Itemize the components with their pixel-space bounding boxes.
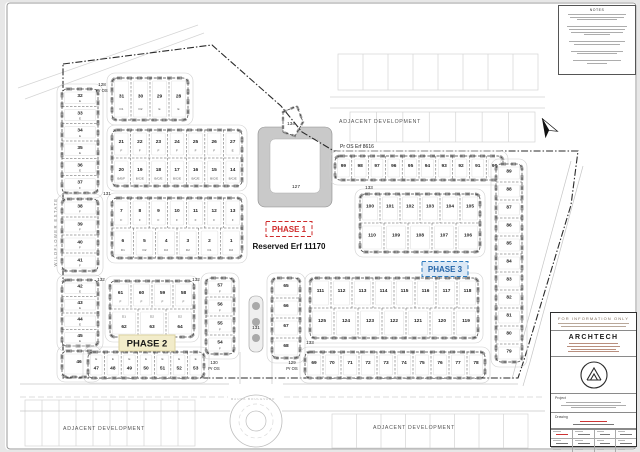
plot-number: 69 <box>311 360 317 366</box>
plot-number: 101 <box>386 203 394 209</box>
plot-number: 99 <box>341 163 347 169</box>
plot-type: F <box>219 327 221 331</box>
plot-number: 34 <box>77 128 83 134</box>
plot-type: D1 <box>120 107 124 111</box>
plot-type: E <box>79 306 81 310</box>
plot-number: 30 <box>138 93 144 99</box>
plot-type: E <box>232 148 234 152</box>
map-label: Pr OS Erf 8616 <box>340 144 374 150</box>
plot-number: 120 <box>438 318 446 324</box>
plot-number: 50 <box>143 366 149 372</box>
map-label: 128 <box>98 82 106 87</box>
plot-type: B/C/E <box>173 176 181 180</box>
plot-type: D1 <box>121 248 125 252</box>
plot-type: E <box>79 290 81 294</box>
plot-type: D2 <box>150 314 154 318</box>
notes-panel: NOTES <box>558 5 636 75</box>
plot-number: 29 <box>157 93 163 99</box>
plot-number: 24 <box>174 139 180 145</box>
plot-number: 53 <box>193 366 199 372</box>
plot-number: 67 <box>283 323 289 329</box>
plot-type: E <box>162 357 164 361</box>
plot-number: 70 <box>329 360 335 366</box>
plot-type: F <box>219 308 221 312</box>
plot-type: F <box>79 210 81 214</box>
plot-number: 3 <box>186 238 189 244</box>
project-section: Project <box>551 394 636 413</box>
plot-number: 106 <box>464 232 472 238</box>
plot-number: 48 <box>110 366 116 372</box>
notes-title: NOTES <box>564 8 630 12</box>
plot-number: 59 <box>160 290 166 296</box>
plot-type: F <box>183 299 185 303</box>
plot-number: 80 <box>506 330 512 336</box>
plot-type: F <box>139 218 141 222</box>
plot-number: 40 <box>77 239 83 245</box>
plot-type: D2 <box>164 248 168 252</box>
plot-type: F <box>139 148 141 152</box>
plot-number: 94 <box>425 163 431 169</box>
map-label: 134 <box>287 121 295 126</box>
plot-number: 100 <box>366 203 374 209</box>
plot-type: D2 <box>229 248 233 252</box>
plot-number: 46 <box>76 359 82 365</box>
drawing-section: Drawing <box>551 413 636 429</box>
plot-number: 122 <box>390 318 398 324</box>
plot-type: D2 <box>139 107 143 111</box>
entrance-median <box>249 296 263 352</box>
plot-type: F <box>120 299 122 303</box>
plot-type: B/C/E <box>229 176 237 180</box>
plot-block: 100101102103104105110109108107106 <box>355 189 485 257</box>
map-label: 127 <box>292 184 300 190</box>
plot-type: E <box>177 107 179 111</box>
plot-number: 62 <box>121 324 127 330</box>
plot-number: 79 <box>506 348 512 354</box>
plot-number: 15 <box>211 167 217 173</box>
map-label: 129 <box>288 360 296 365</box>
plot-number: 82 <box>506 294 512 300</box>
plot-number: 41 <box>77 257 83 263</box>
plot-number: 7 <box>120 208 123 214</box>
plot-number: 107 <box>440 232 448 238</box>
phase-label-phase-3: PHASE 3 <box>422 262 468 277</box>
plot-number: 96 <box>391 163 397 169</box>
plot-block: 99989796959493929190 <box>330 151 508 185</box>
plot-type: F <box>120 148 122 152</box>
map-label: ADJACENT DEVELOPMENT <box>63 426 145 432</box>
info-banner-section: FOR INFORMATION ONLY <box>551 313 636 331</box>
map-label: 133 <box>365 185 373 190</box>
plot-type: F <box>213 218 215 222</box>
plot-number: 38 <box>77 203 83 209</box>
plot-number: 119 <box>462 318 470 324</box>
plot-number: 103 <box>426 203 434 209</box>
tree-icon <box>252 334 260 342</box>
plot-number: 54 <box>217 340 223 346</box>
plot-number: 26 <box>211 139 217 145</box>
revision-table <box>551 429 636 452</box>
plot-number: 10 <box>174 208 180 214</box>
plot-number: 117 <box>443 288 451 294</box>
plot-number: 89 <box>506 168 512 174</box>
plot-type: F <box>213 148 215 152</box>
map-label: ADJACENT DEVELOPMENT <box>339 119 421 125</box>
plot-number: 2 <box>208 238 211 244</box>
plot-number: 72 <box>365 360 371 366</box>
plot-number: 81 <box>506 312 512 318</box>
plot-number: 60 <box>139 290 145 296</box>
plot-number: 111 <box>317 288 325 294</box>
plot-number: 22 <box>137 139 143 145</box>
plot-number: 55 <box>217 321 223 327</box>
plot-type: E <box>178 357 180 361</box>
plot-number: 1 <box>230 238 233 244</box>
plot-block: 7F8F9F10F11F12F13F6D15D24D23D22D11D2 <box>107 193 247 263</box>
plot-type: F <box>162 299 164 303</box>
plot-number: 75 <box>419 360 425 366</box>
plot-type: F <box>195 218 197 222</box>
firm-name: ARCHTECH <box>555 334 632 341</box>
plot-number: 6 <box>121 238 124 244</box>
plot-number: 78 <box>473 360 479 366</box>
plot-number: 105 <box>466 203 474 209</box>
drawing-label: Drawing <box>555 415 632 419</box>
plot-number: 11 <box>193 208 198 214</box>
plot-number: 13 <box>230 208 236 214</box>
plot-type: F <box>219 289 221 293</box>
plot-number: 16 <box>193 167 199 173</box>
map-label: 130 <box>210 360 218 365</box>
erf-127-open-space <box>258 127 332 207</box>
plot-type: E <box>158 107 160 111</box>
plot-number: 28 <box>176 93 182 99</box>
plot-number: 84 <box>506 258 512 264</box>
plot-number: 14 <box>230 167 236 173</box>
plot-block: 8988878685848382818079 <box>491 159 527 367</box>
plot-number: 35 <box>77 145 83 151</box>
plot-number: 124 <box>342 318 350 324</box>
plot-number: 123 <box>366 318 374 324</box>
plot-number: 87 <box>506 204 512 210</box>
plot-type: D2 <box>143 248 147 252</box>
plot-number: 20 <box>119 167 125 173</box>
plot-block: 42E43E44E45E <box>57 275 103 351</box>
map-label: Pr OS <box>286 366 298 371</box>
plot-type: F <box>141 299 143 303</box>
plot-number: 19 <box>137 167 143 173</box>
plot-number: 114 <box>380 288 388 294</box>
plot-number: 52 <box>176 366 182 372</box>
phase-label-phase-2: PHASE 2 <box>119 335 175 351</box>
plot-number: 77 <box>455 360 461 366</box>
plot-type: B/C/E <box>136 176 144 180</box>
archtech-logo-icon <box>579 360 609 390</box>
plot-block: 21F22F23F24F25F26F27E20B/E/F19B/C/E18B/C… <box>107 125 247 191</box>
plot-type: E <box>95 357 97 361</box>
plot-type: F <box>79 264 81 268</box>
plot-type: E <box>79 117 81 121</box>
plot-number: 115 <box>401 288 409 294</box>
plot-number: 98 <box>358 163 364 169</box>
plot-type: F <box>195 148 197 152</box>
plot-type: D1 <box>208 248 212 252</box>
plot-type: F <box>79 228 81 232</box>
plot-number: 5 <box>143 238 146 244</box>
plot-block: 32E33E34E35E36E37F <box>57 84 103 198</box>
plot-number: 23 <box>156 139 162 145</box>
plot-type: E <box>79 323 81 327</box>
plot-number: 66 <box>283 303 289 309</box>
plot-number: 86 <box>506 222 512 228</box>
plot-block: 38F39F40F41F <box>57 194 103 276</box>
plot-number: 112 <box>338 288 346 294</box>
map-label: 131 <box>252 325 260 330</box>
plot-type: D1 <box>122 314 126 318</box>
map-label: WILDFLOWER ESTATE <box>53 197 58 266</box>
plot-type: F <box>79 186 81 190</box>
plot-number: 31 <box>119 93 125 99</box>
map-label: ADJACENT DEVELOPMENT <box>373 425 455 431</box>
plot-number: 8 <box>139 208 142 214</box>
plot-type: F <box>79 246 81 250</box>
plot-number: 121 <box>414 318 422 324</box>
plot-number: 51 <box>160 366 166 372</box>
phase-label-phase-1: PHASE 1 <box>266 222 312 237</box>
plot-type: E <box>79 339 81 343</box>
plot-number: 56 <box>217 302 223 308</box>
plot-number: 21 <box>119 139 125 145</box>
for-information-only-banner: FOR INFORMATION ONLY <box>555 316 632 321</box>
plot-number: 65 <box>283 283 289 289</box>
plot-block: 61F60F59F58F62D163D264D2 <box>105 276 199 342</box>
plot-number: 58 <box>181 290 187 296</box>
site-plan-svg: 31D130D229E28E32E33E34E35E36E37F38F39F40… <box>0 0 640 452</box>
plot-number: 49 <box>127 366 133 372</box>
plot-type: F <box>176 148 178 152</box>
plot-type: F <box>120 218 122 222</box>
plot-block: 1111121131141151161171181251241231221211… <box>305 273 483 343</box>
svg-text:PHASE 2: PHASE 2 <box>127 338 168 349</box>
plot-type: B/C/E <box>210 176 218 180</box>
plot-number: 71 <box>347 360 353 366</box>
map-label: 132 <box>97 277 105 282</box>
plot-number: 25 <box>193 139 199 145</box>
plot-number: 113 <box>359 288 367 294</box>
plot-block: 31D130D229E28E <box>107 73 193 125</box>
plot-number: 116 <box>422 288 430 294</box>
plot-number: 97 <box>374 163 380 169</box>
map-label: 133 <box>306 340 314 345</box>
plot-type: B/C/E <box>192 176 200 180</box>
plot-type: D2 <box>186 248 190 252</box>
plot-type: F <box>219 346 221 350</box>
plot-type: E <box>195 357 197 361</box>
plot-number: 91 <box>475 163 481 169</box>
plot-number: 4 <box>165 238 168 244</box>
plot-number: 92 <box>458 163 464 169</box>
roundabout-island <box>246 411 266 431</box>
notes-text-lines <box>564 14 630 64</box>
plot-number: 18 <box>156 167 162 173</box>
plot-number: 57 <box>217 283 223 289</box>
plot-type: E <box>128 357 130 361</box>
title-block: FOR INFORMATION ONLY ARCHTECH Project Dr… <box>550 312 637 447</box>
plot-block: 65666768 <box>267 273 305 363</box>
plot-type: F <box>157 148 159 152</box>
plot-number: 109 <box>392 232 400 238</box>
plot-number: 102 <box>406 203 414 209</box>
logo-section <box>551 357 636 394</box>
plot-type: E <box>79 169 81 173</box>
svg-text:PHASE 1: PHASE 1 <box>272 225 307 234</box>
plot-type: E <box>112 357 114 361</box>
plot-number: 110 <box>368 232 376 238</box>
plot-block: 57F56F55F54F <box>201 273 239 359</box>
plot-number: 68 <box>283 343 289 349</box>
plot-type: E <box>79 134 81 138</box>
plot-number: 47 <box>94 366 100 372</box>
plot-number: 27 <box>230 139 236 145</box>
plot-type: F <box>232 218 234 222</box>
plot-number: 36 <box>77 162 83 168</box>
map-label: Pr OS <box>96 88 108 93</box>
drawing-sheet: 31D130D229E28E32E33E34E35E36E37F38F39F40… <box>0 0 640 452</box>
plot-number: 125 <box>318 318 326 324</box>
plot-type: F <box>176 218 178 222</box>
plot-type: B/C/E <box>154 176 162 180</box>
plot-number: 39 <box>77 221 83 227</box>
plot-block: 69707172737475767778 <box>300 347 490 383</box>
map-label: 132 <box>192 277 200 282</box>
plot-number: 73 <box>383 360 389 366</box>
plot-number: 108 <box>416 232 424 238</box>
map-label: 131 <box>103 191 111 196</box>
plot-number: 12 <box>211 208 217 214</box>
plot-number: 95 <box>408 163 414 169</box>
plot-number: 9 <box>157 208 160 214</box>
plot-type: E <box>79 151 81 155</box>
plot-type: E <box>79 99 81 103</box>
plot-number: 32 <box>77 93 83 99</box>
firm-section: ARCHTECH <box>551 331 636 357</box>
plot-number: 17 <box>174 167 180 173</box>
plot-type: B/E/F <box>117 176 125 180</box>
plot-number: 64 <box>177 324 183 330</box>
tree-icon <box>252 302 260 310</box>
plot-block: 47E48E49E50E51E52E53E <box>83 347 209 383</box>
plot-number: 76 <box>437 360 443 366</box>
plot-type: D2 <box>178 314 182 318</box>
plot-number: 74 <box>401 360 407 366</box>
plot-number: 85 <box>506 240 512 246</box>
plot-number: 83 <box>506 276 512 282</box>
map-label: Reserved Erf 11170 <box>253 242 326 251</box>
plot-number: 63 <box>149 324 155 330</box>
plot-number: 93 <box>442 163 448 169</box>
map-label: Pr OS <box>208 366 220 371</box>
plot-number: 37 <box>77 180 83 186</box>
project-label: Project <box>555 396 632 400</box>
plot-number: 33 <box>77 110 83 116</box>
plot-number: 118 <box>464 288 472 294</box>
plot-number: 61 <box>118 290 124 296</box>
plot-number: 104 <box>446 203 454 209</box>
plot-type: E <box>145 357 147 361</box>
svg-text:PHASE 3: PHASE 3 <box>428 265 463 274</box>
plot-type: F <box>157 218 159 222</box>
plot-number: 88 <box>506 186 512 192</box>
map-label: MAUKA BOULEVARD <box>231 397 276 401</box>
